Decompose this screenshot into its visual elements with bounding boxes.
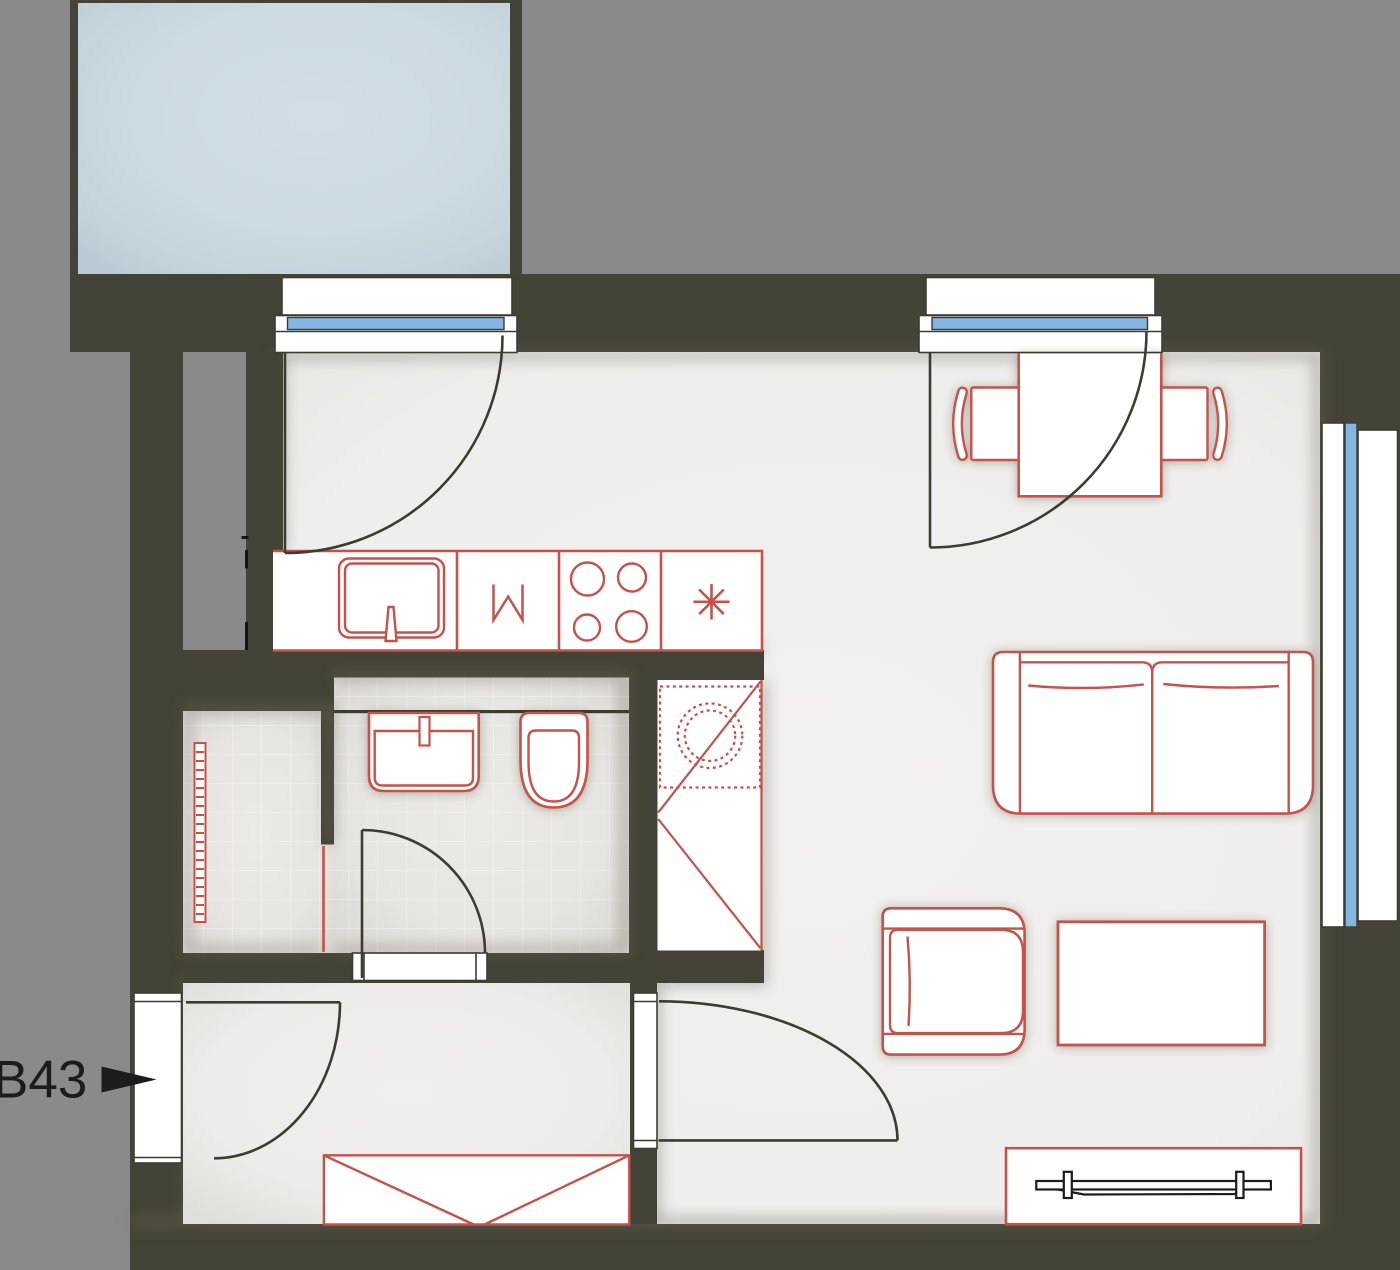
svg-text:B43: B43	[0, 1051, 87, 1110]
